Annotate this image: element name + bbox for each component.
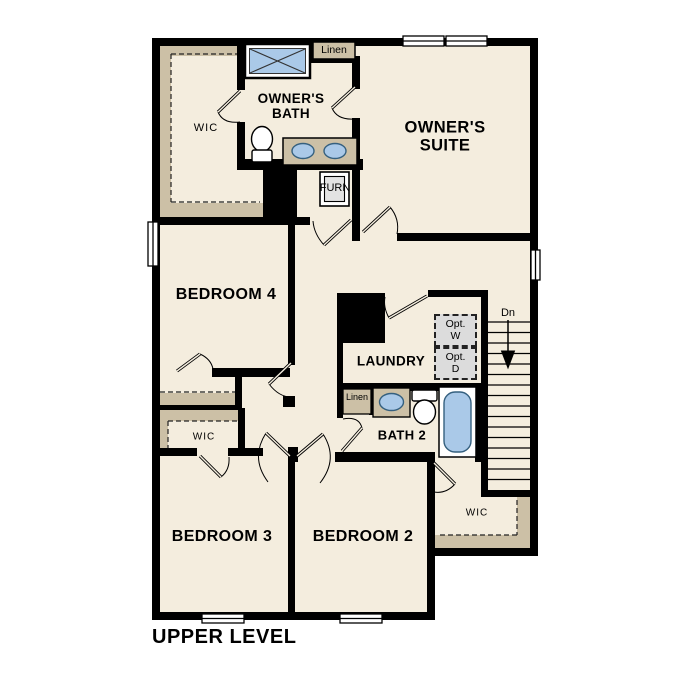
vanity-counter bbox=[283, 138, 357, 165]
page-title: UPPER LEVEL bbox=[152, 626, 296, 649]
toilet bbox=[252, 127, 273, 163]
plan-symbols bbox=[0, 0, 687, 687]
room-label-bedroom3: BEDROOM 3 bbox=[172, 528, 273, 546]
door bbox=[385, 296, 428, 318]
door bbox=[258, 433, 290, 482]
bathtub bbox=[439, 387, 476, 457]
stairs-down-arrow bbox=[502, 320, 515, 368]
closet-label-linen-upper: Linen bbox=[321, 45, 347, 57]
room-label-bedroom2: BEDROOM 2 bbox=[313, 528, 414, 546]
closet-label-bedroom2-wic: WIC bbox=[466, 507, 488, 518]
room-label-owners-suite: OWNER'S SUITE bbox=[405, 119, 486, 156]
door bbox=[200, 456, 229, 477]
floor-plan: Opt. W Opt. D bbox=[0, 0, 687, 687]
door bbox=[342, 418, 362, 451]
room-label-owners-bath: OWNER'S BATH bbox=[258, 91, 325, 121]
door bbox=[434, 463, 455, 492]
room-label-laundry: LAUNDRY bbox=[357, 353, 425, 368]
closet-label-owners-wic: WIC bbox=[194, 122, 218, 134]
optional-dryer-box: Opt. D bbox=[434, 347, 477, 380]
toilet bbox=[412, 390, 437, 424]
door bbox=[332, 87, 355, 119]
closet-label-linen-bath2: Linen bbox=[346, 392, 368, 402]
sink-basin bbox=[292, 144, 314, 159]
sink-basin bbox=[324, 144, 346, 159]
stairs-down-label: Dn bbox=[501, 307, 515, 319]
door bbox=[313, 220, 351, 245]
door bbox=[363, 207, 398, 234]
closet-label-hall-wic: WIC bbox=[193, 431, 215, 442]
door bbox=[297, 434, 330, 483]
door bbox=[218, 91, 240, 122]
fixture-label-furnace: FURN bbox=[320, 182, 351, 194]
sink-basin bbox=[380, 394, 404, 411]
door bbox=[269, 363, 291, 397]
optional-washer-box: Opt. W bbox=[434, 314, 477, 347]
optional-washer-label: Opt. W bbox=[446, 319, 466, 342]
room-label-bath2: BATH 2 bbox=[378, 429, 426, 444]
room-label-bedroom4: BEDROOM 4 bbox=[176, 286, 277, 304]
door bbox=[177, 354, 213, 371]
optional-dryer-label: Opt. D bbox=[446, 352, 466, 375]
stair-treads bbox=[488, 322, 530, 480]
shower bbox=[245, 44, 310, 78]
vanity-counter bbox=[373, 388, 410, 417]
